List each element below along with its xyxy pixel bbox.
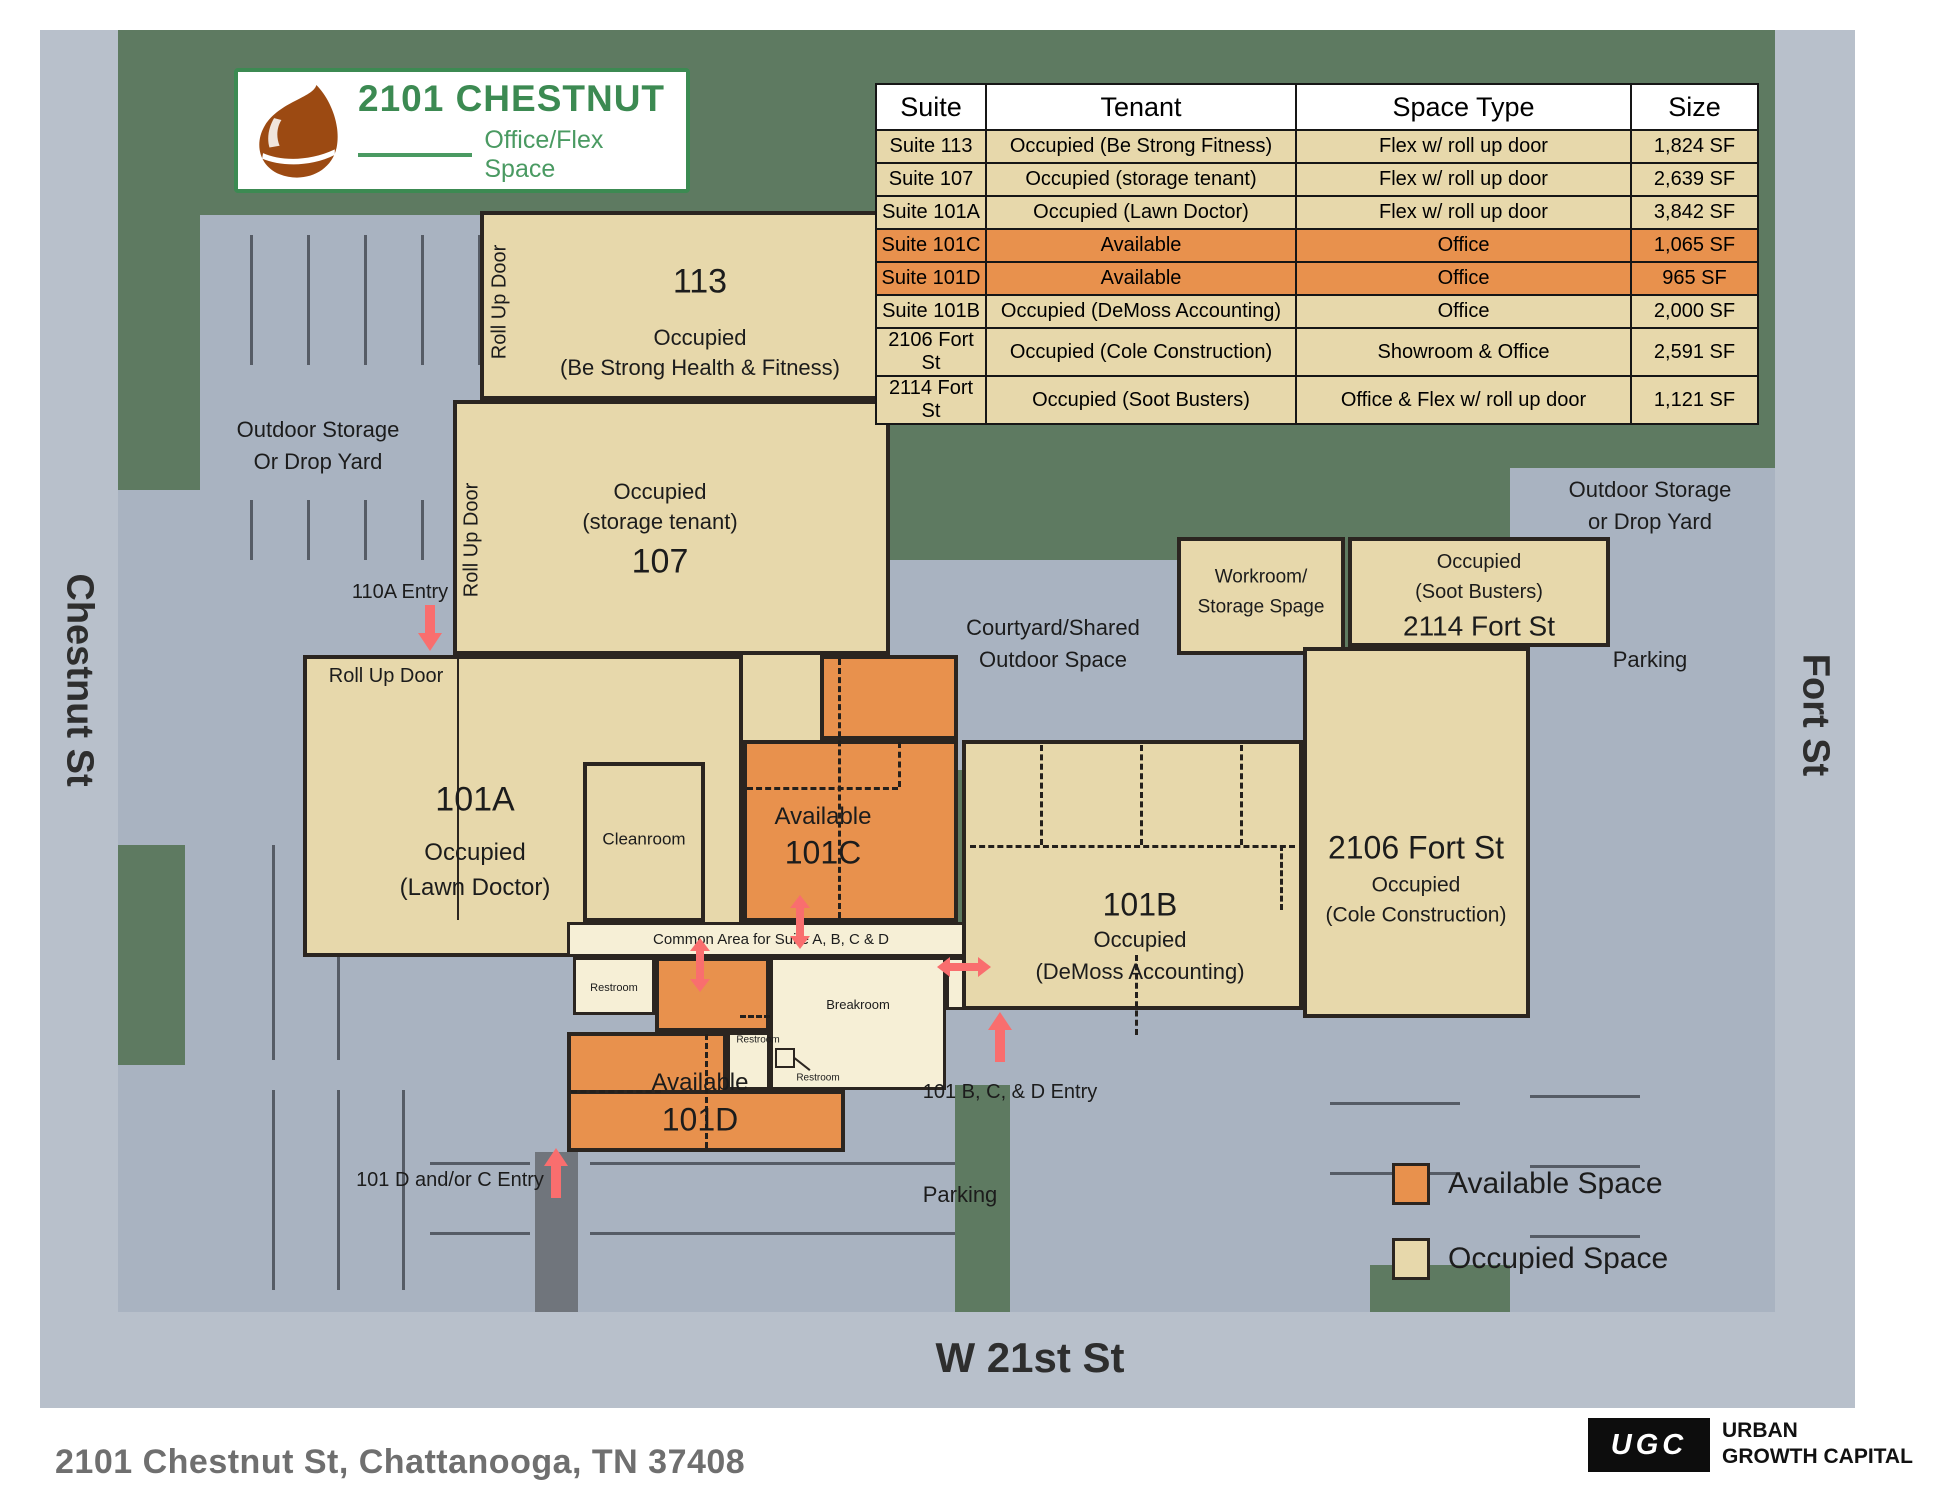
workroom-label2: Storage Spage [1198, 598, 1325, 619]
parking-stall-line [590, 1162, 955, 1165]
parking-stall-line [250, 235, 253, 365]
leftright-arrow-icon-101b [937, 955, 991, 979]
suite-101a-tenant: (Lawn Doctor) [400, 875, 551, 901]
cell-space-type: Flex w/ roll up door [1296, 163, 1631, 196]
cell-suite: Suite 107 [876, 163, 986, 196]
table-row: Suite 101B Occupied (DeMoss Accounting) … [876, 295, 1758, 328]
dashed-wall [571, 1090, 661, 1093]
suite-summary-table: Suite Tenant Space Type Size Suite 113 O… [875, 83, 1759, 425]
parking-stall-line [364, 235, 367, 365]
cell-tenant: Occupied (Be Strong Fitness) [986, 130, 1296, 163]
suite-113-status: Occupied [654, 326, 747, 350]
suite-2106-tenant: (Cole Construction) [1326, 903, 1507, 926]
cell-size: 1,121 SF [1631, 376, 1758, 424]
cell-tenant: Available [986, 229, 1296, 262]
entry-101b-arrow-icon [988, 1012, 1012, 1062]
parking-stall-line [307, 235, 310, 365]
parking-stall-line [430, 1232, 530, 1235]
chestnut-icon [252, 81, 344, 181]
suite-101d-stem [655, 957, 770, 1032]
dashed-wall [1140, 745, 1143, 845]
updown-arrow-icon-101d [688, 938, 712, 992]
suite-107-tenant: (storage tenant) [582, 510, 737, 534]
parking-stall-line [307, 500, 310, 560]
cell-size: 2,639 SF [1631, 163, 1758, 196]
parking-stall-line [421, 235, 424, 365]
dashed-wall [898, 742, 901, 787]
cleanroom-label: Cleanroom [602, 831, 685, 850]
ugc-name-line1: URBAN [1722, 1418, 1913, 1444]
breakroom-label: Breakroom [826, 998, 890, 1012]
ugc-name-line2: GROWTH CAPITAL [1722, 1444, 1913, 1470]
suite-101b-number: 101B [1103, 887, 1178, 922]
header-size: Size [1631, 84, 1758, 130]
cell-size: 965 SF [1631, 262, 1758, 295]
rollup-door-label-107: Roll Up Door [461, 483, 484, 597]
cell-size: 1,824 SF [1631, 130, 1758, 163]
dashed-wall [747, 787, 898, 790]
landscape-patch [955, 1085, 1010, 1342]
breakroom-block [770, 957, 946, 1090]
parking-stall-line [250, 500, 253, 560]
cell-suite: Suite 113 [876, 130, 986, 163]
legend-occupied-label: Occupied Space [1448, 1242, 1668, 1276]
suite-113-tenant: (Be Strong Health & Fitness) [560, 356, 840, 380]
dashed-wall [740, 1015, 770, 1018]
rollup-door-label-113: Roll Up Door [489, 245, 512, 359]
parking-stall-line [430, 1162, 530, 1165]
table-row: 2106 Fort St Occupied (Cole Construction… [876, 328, 1758, 376]
suite-101b-tenant: (DeMoss Accounting) [1035, 960, 1244, 984]
cell-tenant: Available [986, 262, 1296, 295]
landscape-patch [118, 845, 185, 1065]
parking-stall-line [337, 1090, 340, 1290]
cell-suite: 2106 Fort St [876, 328, 986, 376]
suite-101d-status: Available [652, 1070, 749, 1096]
cell-suite: Suite 101D [876, 262, 986, 295]
parking-stall-line [272, 1090, 275, 1290]
dashed-wall [1040, 745, 1043, 845]
workroom-label: Workroom/ [1215, 568, 1308, 589]
table-row: Suite 101A Occupied (Lawn Doctor) Flex w… [876, 196, 1758, 229]
suite-107-status: Occupied [614, 480, 707, 504]
entry-110a-label: 110A Entry [352, 581, 448, 603]
cell-space-type: Flex w/ roll up door [1296, 196, 1631, 229]
table-row: Suite 107 Occupied (storage tenant) Flex… [876, 163, 1758, 196]
header-suite: Suite [876, 84, 986, 130]
parking-stall-line [1330, 1102, 1460, 1105]
suite-101c-number: 101C [785, 835, 862, 870]
suite-101a-number: 101A [435, 781, 514, 818]
cell-suite: Suite 101A [876, 196, 986, 229]
parking-right-label: Parking [1613, 648, 1688, 672]
outdoor-storage-left-label2: Or Drop Yard [254, 450, 383, 474]
dashed-wall [1280, 845, 1283, 910]
cell-tenant: Occupied (Cole Construction) [986, 328, 1296, 376]
logo-title: 2101 CHESTNUT [358, 78, 672, 120]
cell-space-type: Office [1296, 295, 1631, 328]
suite-101c-main [743, 740, 958, 922]
outdoor-storage-right-label2: or Drop Yard [1588, 510, 1712, 534]
parking-stall-line [421, 500, 424, 560]
entry-101dc-label: 101 D and/or C Entry [356, 1169, 544, 1191]
cell-suite: Suite 101B [876, 295, 986, 328]
suite-2114-status: Occupied [1437, 551, 1522, 573]
cell-space-type: Office [1296, 262, 1631, 295]
courtyard-label: Courtyard/Shared [966, 616, 1140, 640]
w21st-st-label: W 21st St [935, 1335, 1124, 1381]
legend-available-swatch [1392, 1163, 1430, 1205]
suite-2106-number: 2106 Fort St [1328, 830, 1504, 865]
cell-tenant: Occupied (DeMoss Accounting) [986, 295, 1296, 328]
parking-bottom-label: Parking [923, 1183, 998, 1207]
table-row: Suite 113 Occupied (Be Strong Fitness) F… [876, 130, 1758, 163]
dashed-wall [1240, 745, 1243, 845]
restroom-c-label: Restroom [796, 1073, 839, 1084]
parking-stall-line [590, 1232, 955, 1235]
property-address: 2101 Chestnut St, Chattanooga, TN 37408 [55, 1443, 745, 1482]
suite-2114-tenant: (Soot Busters) [1415, 581, 1543, 603]
logo-rule [358, 153, 472, 157]
header-tenant: Tenant [986, 84, 1296, 130]
cell-tenant: Occupied (Lawn Doctor) [986, 196, 1296, 229]
rollup-door-label-101a: Roll Up Door [329, 665, 443, 687]
parking-stall-line [364, 500, 367, 560]
cell-size: 2,591 SF [1631, 328, 1758, 376]
courtyard-label2: Outdoor Space [979, 648, 1127, 672]
parking-stall-line [272, 845, 275, 1060]
suite-101c-status: Available [775, 804, 872, 830]
cell-space-type: Flex w/ roll up door [1296, 130, 1631, 163]
entry-101d-arrow-icon [544, 1148, 568, 1198]
entry-101bcd-label: 101 B, C, & D Entry [923, 1081, 1098, 1103]
updown-arrow-icon-101c [788, 895, 812, 949]
dashed-wall [970, 845, 1295, 848]
fort-st-label: Fort St [1794, 654, 1837, 776]
suite-113-number: 113 [673, 263, 727, 300]
table-row: Suite 101D Available Office 965 SF [876, 262, 1758, 295]
suite-101d-number: 101D [662, 1102, 739, 1137]
restroom-b-label: Restroom [736, 1035, 779, 1046]
entry-110a-arrow-icon [418, 605, 442, 651]
cell-space-type: Showroom & Office [1296, 328, 1631, 376]
cell-tenant: Occupied (storage tenant) [986, 163, 1296, 196]
suite-2106-status: Occupied [1372, 873, 1461, 896]
cell-space-type: Office [1296, 229, 1631, 262]
cell-suite: Suite 101C [876, 229, 986, 262]
suite-107-number: 107 [632, 543, 689, 580]
chestnut-st-label: Chestnut St [58, 573, 101, 786]
ugc-logo-abbr: UGC [1611, 1429, 1687, 1462]
suite-2114-number: 2114 Fort St [1403, 612, 1555, 643]
cell-size: 1,065 SF [1631, 229, 1758, 262]
property-logo-card: 2101 CHESTNUT Office/Flex Space [234, 68, 690, 193]
legend-available-label: Available Space [1448, 1167, 1663, 1201]
outdoor-storage-left-label: Outdoor Storage [237, 418, 400, 442]
table-row: Suite 101C Available Office 1,065 SF [876, 229, 1758, 262]
restroom-a-label: Restroom [590, 982, 638, 994]
cell-size: 3,842 SF [1631, 196, 1758, 229]
cell-space-type: Office & Flex w/ roll up door [1296, 376, 1631, 424]
cell-tenant: Occupied (Soot Busters) [986, 376, 1296, 424]
outdoor-storage-right-label: Outdoor Storage [1569, 478, 1732, 502]
cell-suite: 2114 Fort St [876, 376, 986, 424]
ugc-logo-name: URBAN GROWTH CAPITAL [1722, 1418, 1913, 1470]
table-header-row: Suite Tenant Space Type Size [876, 84, 1758, 130]
restroom-tiny-room [775, 1048, 795, 1068]
ugc-logo: UGC [1588, 1418, 1710, 1472]
parking-stall-line [1530, 1095, 1640, 1098]
cell-size: 2,000 SF [1631, 295, 1758, 328]
legend-occupied-swatch [1392, 1238, 1430, 1280]
suite-101b-status: Occupied [1094, 928, 1187, 952]
parking-stall-line [1530, 1235, 1640, 1238]
suite-101a-status: Occupied [424, 840, 525, 866]
header-space-type: Space Type [1296, 84, 1631, 130]
table-row: 2114 Fort St Occupied (Soot Busters) Off… [876, 376, 1758, 424]
logo-subtitle: Office/Flex Space [484, 126, 672, 184]
